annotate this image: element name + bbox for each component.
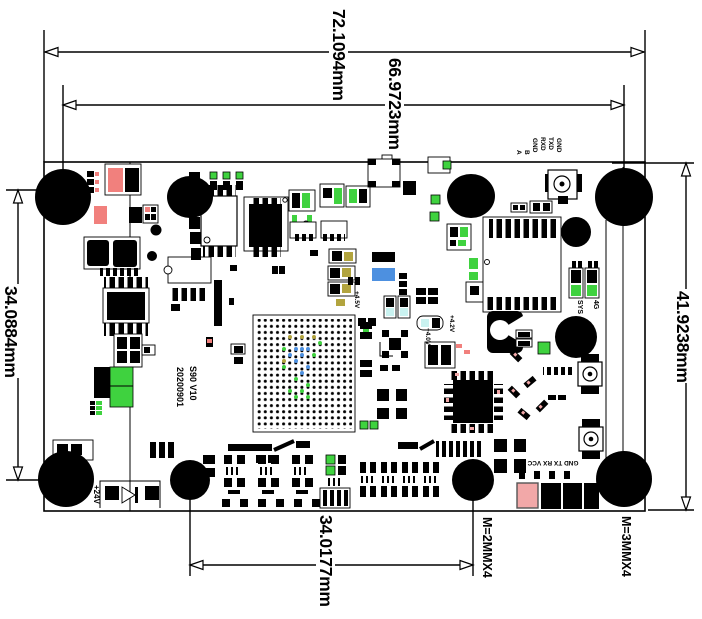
blue-capacitor — [372, 268, 395, 281]
dim-hole-span-left-label: 34.0884mm — [1, 286, 21, 378]
mounting-hole-m3-top-left — [35, 169, 91, 225]
push-button — [368, 159, 400, 187]
mounting-hole-m2-top-right — [447, 174, 495, 218]
dual-caps — [425, 342, 455, 368]
led-label-sys: SYS — [576, 300, 583, 314]
ipex-antenna-connector-mid — [578, 354, 602, 394]
volt-label-3: +4.0V — [424, 328, 431, 346]
board-model-label: S90 V10 — [188, 366, 198, 401]
mount-spec-m2-label: M=2MMX4 — [480, 517, 494, 578]
pin-label-a: A — [515, 150, 522, 155]
fuse-body — [372, 252, 395, 262]
dim-hole-span-bottom-label: 34.0177mm — [316, 515, 336, 607]
dim-board-height-label: 41.9238mm — [673, 291, 693, 383]
crystal-cross-a — [377, 389, 407, 419]
ipex-antenna-connector-low — [579, 419, 603, 459]
mount-spec-m3-label: M=3MMX4 — [619, 516, 633, 577]
volt-label-2: +4.2V — [448, 315, 455, 333]
crystal-cross-b — [494, 439, 526, 473]
dim-hole-span-width-label: 66.9723mm — [385, 58, 405, 150]
pin-label-gnd1: GND — [531, 138, 538, 153]
drawing-svg: 72.1094mm 66.9723mm 34.0884mm 41.9238mm … — [0, 0, 702, 619]
soic-chip — [164, 257, 211, 301]
pin-label-b: B — [523, 150, 530, 155]
mounting-hole-m2-bottom-left — [170, 460, 210, 500]
ipex-antenna-connector-top — [545, 170, 582, 204]
pin-label-rxd: RXD — [539, 137, 546, 151]
pin-label-txd: TXD — [547, 137, 554, 150]
pcb-dimension-drawing: 72.1094mm 66.9723mm 34.0884mm 41.9238mm … — [0, 0, 702, 619]
pin-label-gnd2: GND — [555, 138, 562, 153]
flash-chip — [244, 197, 288, 257]
volt-label-1: +4.5V — [353, 291, 360, 309]
capacitor-round-bottom — [555, 316, 597, 358]
module-footprint — [483, 217, 561, 312]
mounting-hole-m3-bottom-right — [596, 451, 652, 507]
capacitor-round-top — [561, 217, 591, 247]
pin-label-serial-bottom: GND TX RX VCC — [527, 459, 578, 466]
power-ic — [103, 288, 149, 336]
mounting-hole-m2-top-left — [167, 176, 213, 218]
bga-footprint — [253, 315, 355, 432]
led-label-4g: 4G — [592, 300, 599, 310]
dim-board-width-label: 72.1094mm — [329, 9, 349, 101]
board-date-label: 20200901 — [175, 367, 185, 407]
power-input-label: +24V — [92, 485, 101, 505]
mounting-hole-m3-bottom-left — [38, 451, 94, 507]
